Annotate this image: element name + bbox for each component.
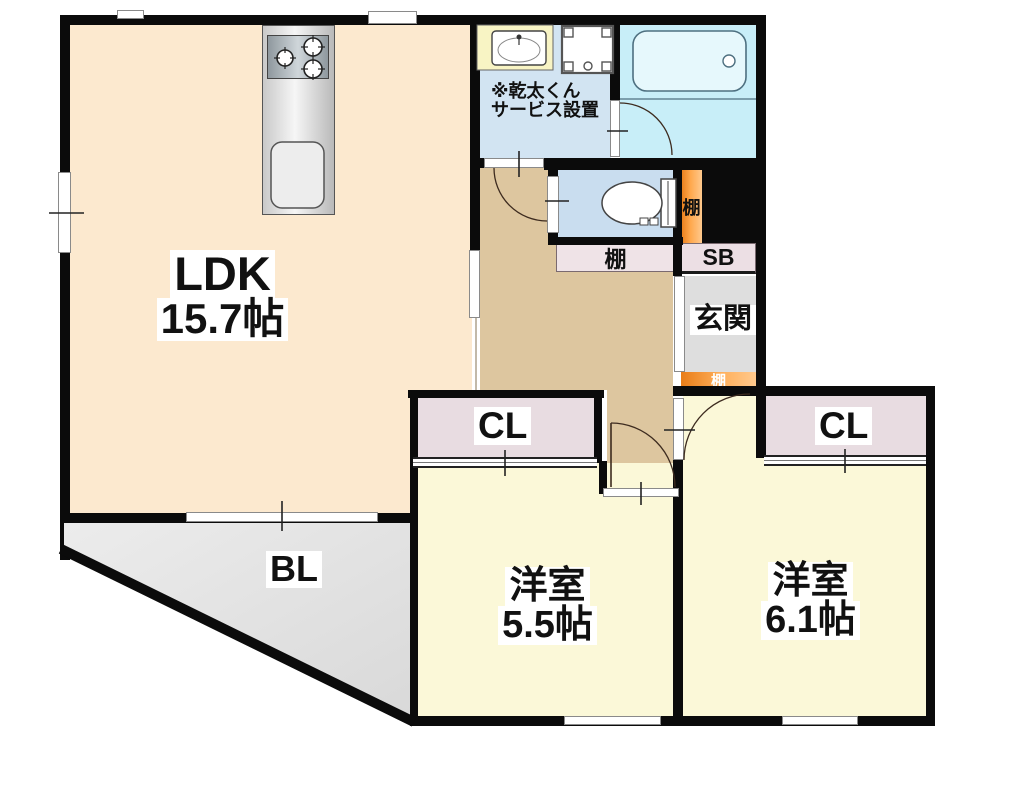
- wall-washroom-bath-divider: [610, 15, 620, 103]
- window-bedroom-a: [564, 716, 661, 725]
- wall-under-entrance-shelf: [673, 386, 760, 396]
- closet-b-label: CL: [815, 405, 872, 447]
- closet-a-sliding-doors: [413, 457, 597, 468]
- shelf-hall-label: 棚: [683, 194, 701, 220]
- ldk-label: LDK: [170, 250, 275, 298]
- door-bathroom-leaf: [610, 100, 620, 157]
- ldk-size: 15.7帖: [157, 298, 289, 341]
- wall-ldk-washroom: [470, 15, 480, 250]
- wall-right-upper: [756, 15, 766, 396]
- void-black: [702, 170, 756, 243]
- bedroom-b-label-group: 洋室 6.1帖: [713, 562, 908, 640]
- dryer-note-line1: ※乾太くん: [491, 82, 599, 101]
- door-threshold-bedroom-a: [603, 488, 679, 497]
- door-opening-bedroom-b: [673, 398, 684, 460]
- balcony-area: [61, 523, 414, 722]
- room-toilet: [558, 170, 673, 237]
- shelf-wc-label: 棚: [604, 242, 626, 274]
- closet-b-sliding-doors: [764, 455, 926, 466]
- room-ldk-lower: [70, 390, 410, 513]
- window-bedroom-b: [782, 716, 858, 725]
- window-left: [58, 172, 71, 253]
- bedroom-b-label: 洋室: [768, 562, 852, 601]
- wall-washroom-bottom-left: [470, 158, 484, 168]
- wall-hall-right: [673, 168, 682, 276]
- wall-toilet-bottom: [548, 237, 683, 245]
- wall-closet-a-right: [594, 397, 602, 463]
- bedroom-a-size: 5.5帖: [498, 606, 597, 645]
- shoe-box-label: SB: [703, 244, 735, 271]
- wall-closet-b-left: [756, 396, 766, 458]
- door-toilet: [547, 176, 559, 233]
- wall-water-area-bottom: [544, 158, 766, 170]
- shoe-box: SB: [681, 243, 756, 274]
- door-opening-washroom: [484, 158, 544, 168]
- wall-right-lower: [926, 386, 935, 726]
- balcony-label: BL: [266, 548, 322, 590]
- window-balcony-slider: [186, 512, 378, 522]
- bedroom-a-label: 洋室: [505, 567, 589, 606]
- wall-closet-a-top: [408, 390, 604, 398]
- stove-icon: [267, 35, 329, 79]
- shelf-toilet-side: 棚: [681, 170, 702, 243]
- dryer-note-line2: サービス設置: [491, 101, 599, 120]
- room-bathroom: [620, 25, 756, 158]
- window-top: [368, 11, 417, 24]
- window-notch-top: [117, 10, 144, 19]
- closet-a-label: CL: [474, 405, 531, 447]
- entrance-step: [674, 276, 685, 372]
- ldk-label-group: LDK 15.7帖: [95, 250, 350, 341]
- wall-left: [60, 15, 70, 560]
- wall-bedroom-a-left: [410, 390, 418, 720]
- door-ldk-hall: [469, 250, 480, 318]
- dryer-note: ※乾太くん サービス設置: [491, 82, 599, 121]
- wall-bedroom-divider: [673, 460, 683, 726]
- floorplan: 棚 棚 SB 棚: [0, 0, 1024, 787]
- entrance-label: 玄関: [690, 303, 756, 336]
- shelf-wc-strip: 棚: [556, 243, 675, 272]
- bedroom-a-label-group: 洋室 5.5帖: [450, 567, 645, 645]
- bedroom-b-size: 6.1帖: [761, 601, 860, 640]
- wall-closet-b-top: [756, 386, 935, 396]
